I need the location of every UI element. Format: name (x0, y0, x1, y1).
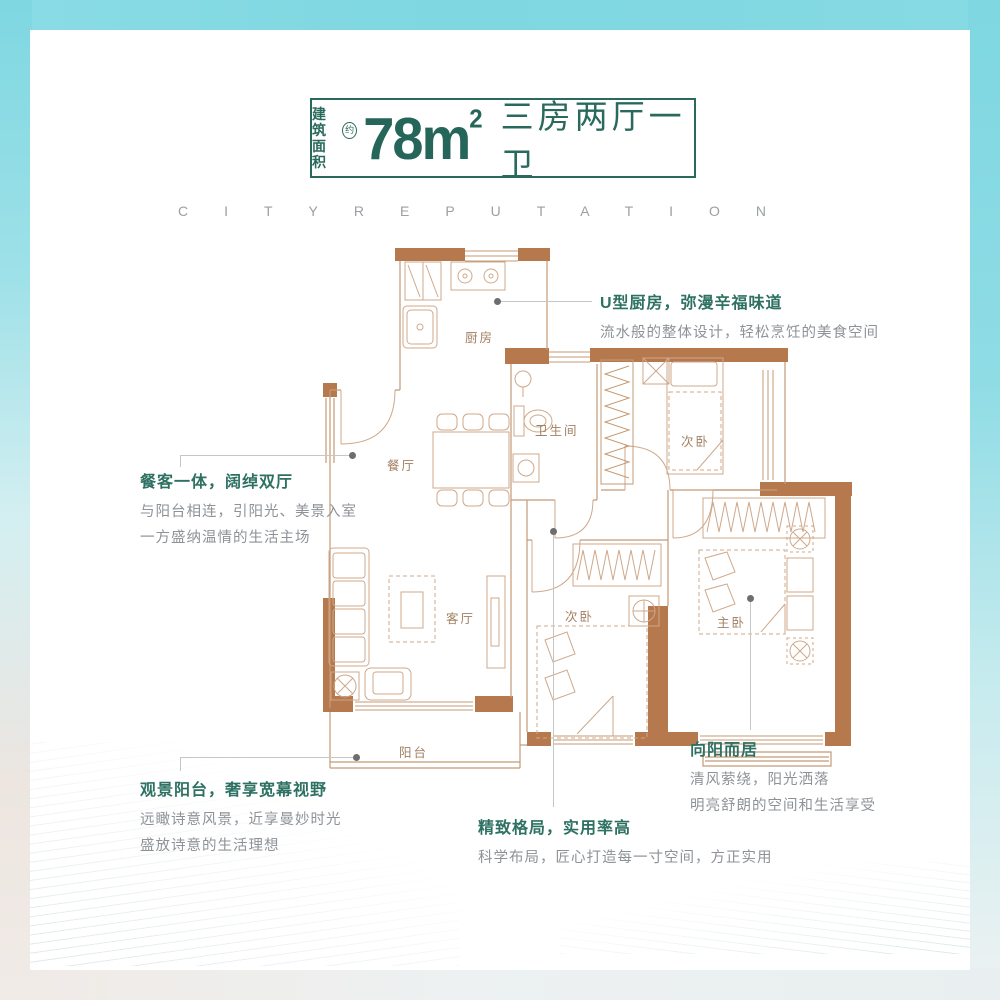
room-label-kitchen: 厨房 (465, 330, 494, 345)
approx-badge: 约 (342, 122, 357, 139)
callout-layout-desc: 科学布局，匠心打造每一寸空间，方正实用 (478, 845, 773, 871)
frame-left (0, 0, 32, 1000)
watermark-text: CITYREPUTATION (178, 203, 802, 219)
leader-dining (180, 455, 352, 456)
callout-layout: 精致格局，实用率高 科学布局，匠心打造每一寸空间，方正实用 (478, 814, 773, 871)
callout-balcony-desc2: 盛放诗意的生活理想 (140, 833, 342, 859)
leader-balcony (180, 757, 356, 758)
header-box: 建筑 面积 约 78m2 三房两厅一卫 (310, 98, 696, 178)
leader-dot-balcony (353, 754, 360, 761)
area-label-line1: 建筑 (312, 106, 338, 138)
callout-master-desc2: 明亮舒朗的空间和生活享受 (690, 793, 876, 819)
frame-bottom (0, 968, 1000, 1000)
frame-top (0, 0, 1000, 32)
area-label-line2: 面积 (312, 138, 338, 170)
room-label-master: 主卧 (717, 616, 746, 630)
callout-kitchen-desc: 流水般的整体设计，轻松烹饪的美食空间 (600, 320, 879, 346)
bedroom-mid-furniture (537, 544, 661, 738)
area-label: 建筑 面积 (312, 106, 338, 170)
callout-master: 向阳而居 清风萦绕，阳光洒落 明亮舒朗的空间和生活享受 (690, 736, 876, 819)
area-number: 78m (363, 105, 469, 172)
room-label-living: 客厅 (446, 611, 475, 626)
master-furniture (699, 498, 825, 664)
dining-furniture (433, 414, 509, 506)
callout-kitchen: U型厨房，弥漫辛福味道 流水般的整体设计，轻松烹饪的美食空间 (600, 289, 879, 346)
callout-kitchen-title: U型厨房，弥漫辛福味道 (600, 289, 879, 313)
callout-dining-desc1: 与阳台相连，引阳光、美景入室 (140, 499, 357, 525)
decorative-lines-bottom-right (560, 862, 970, 954)
room-label-bathroom: 卫生间 (535, 424, 579, 438)
leader-dot-master (747, 595, 754, 602)
leader-dot-kitchen (494, 298, 501, 305)
leader-kitchen (497, 301, 592, 302)
leader-dot-dining (349, 452, 356, 459)
callout-master-title: 向阳而居 (690, 736, 876, 760)
area-exponent: 2 (469, 105, 482, 134)
room-label-balcony: 阳台 (399, 745, 428, 760)
leader-master (750, 598, 751, 730)
leader-dining-drop (180, 455, 181, 467)
room-label-bedroom-mid: 次卧 (565, 610, 594, 624)
layout-title: 三房两厅一卫 (501, 90, 694, 186)
callout-balcony-desc1: 远瞰诗意风景，近享曼妙时光 (140, 807, 342, 833)
area-value: 78m2 (363, 104, 482, 173)
callout-dining-desc2: 一方盛纳温情的生活主场 (140, 525, 357, 551)
room-label-bedroom-top: 次卧 (681, 435, 710, 449)
callout-master-desc1: 清风萦绕，阳光洒落 (690, 767, 876, 793)
room-label-dining: 餐厅 (387, 458, 416, 473)
callout-balcony-title: 观景阳台，奢享宽幕视野 (140, 776, 342, 800)
bedroom-top-furniture (643, 358, 723, 474)
callout-dining: 餐客一体，阔绰双厅 与阳台相连，引阳光、美景入室 一方盛纳温情的生活主场 (140, 468, 357, 551)
leader-dot-layout (550, 528, 557, 535)
leader-layout (553, 531, 554, 807)
hall-wardrobe (601, 360, 633, 484)
callout-dining-title: 餐客一体，阔绰双厅 (140, 468, 357, 492)
frame-right (968, 0, 1000, 1000)
callout-balcony: 观景阳台，奢享宽幕视野 远瞰诗意风景，近享曼妙时光 盛放诗意的生活理想 (140, 776, 342, 859)
living-furniture (329, 548, 505, 700)
leader-balcony-drop (180, 757, 181, 771)
